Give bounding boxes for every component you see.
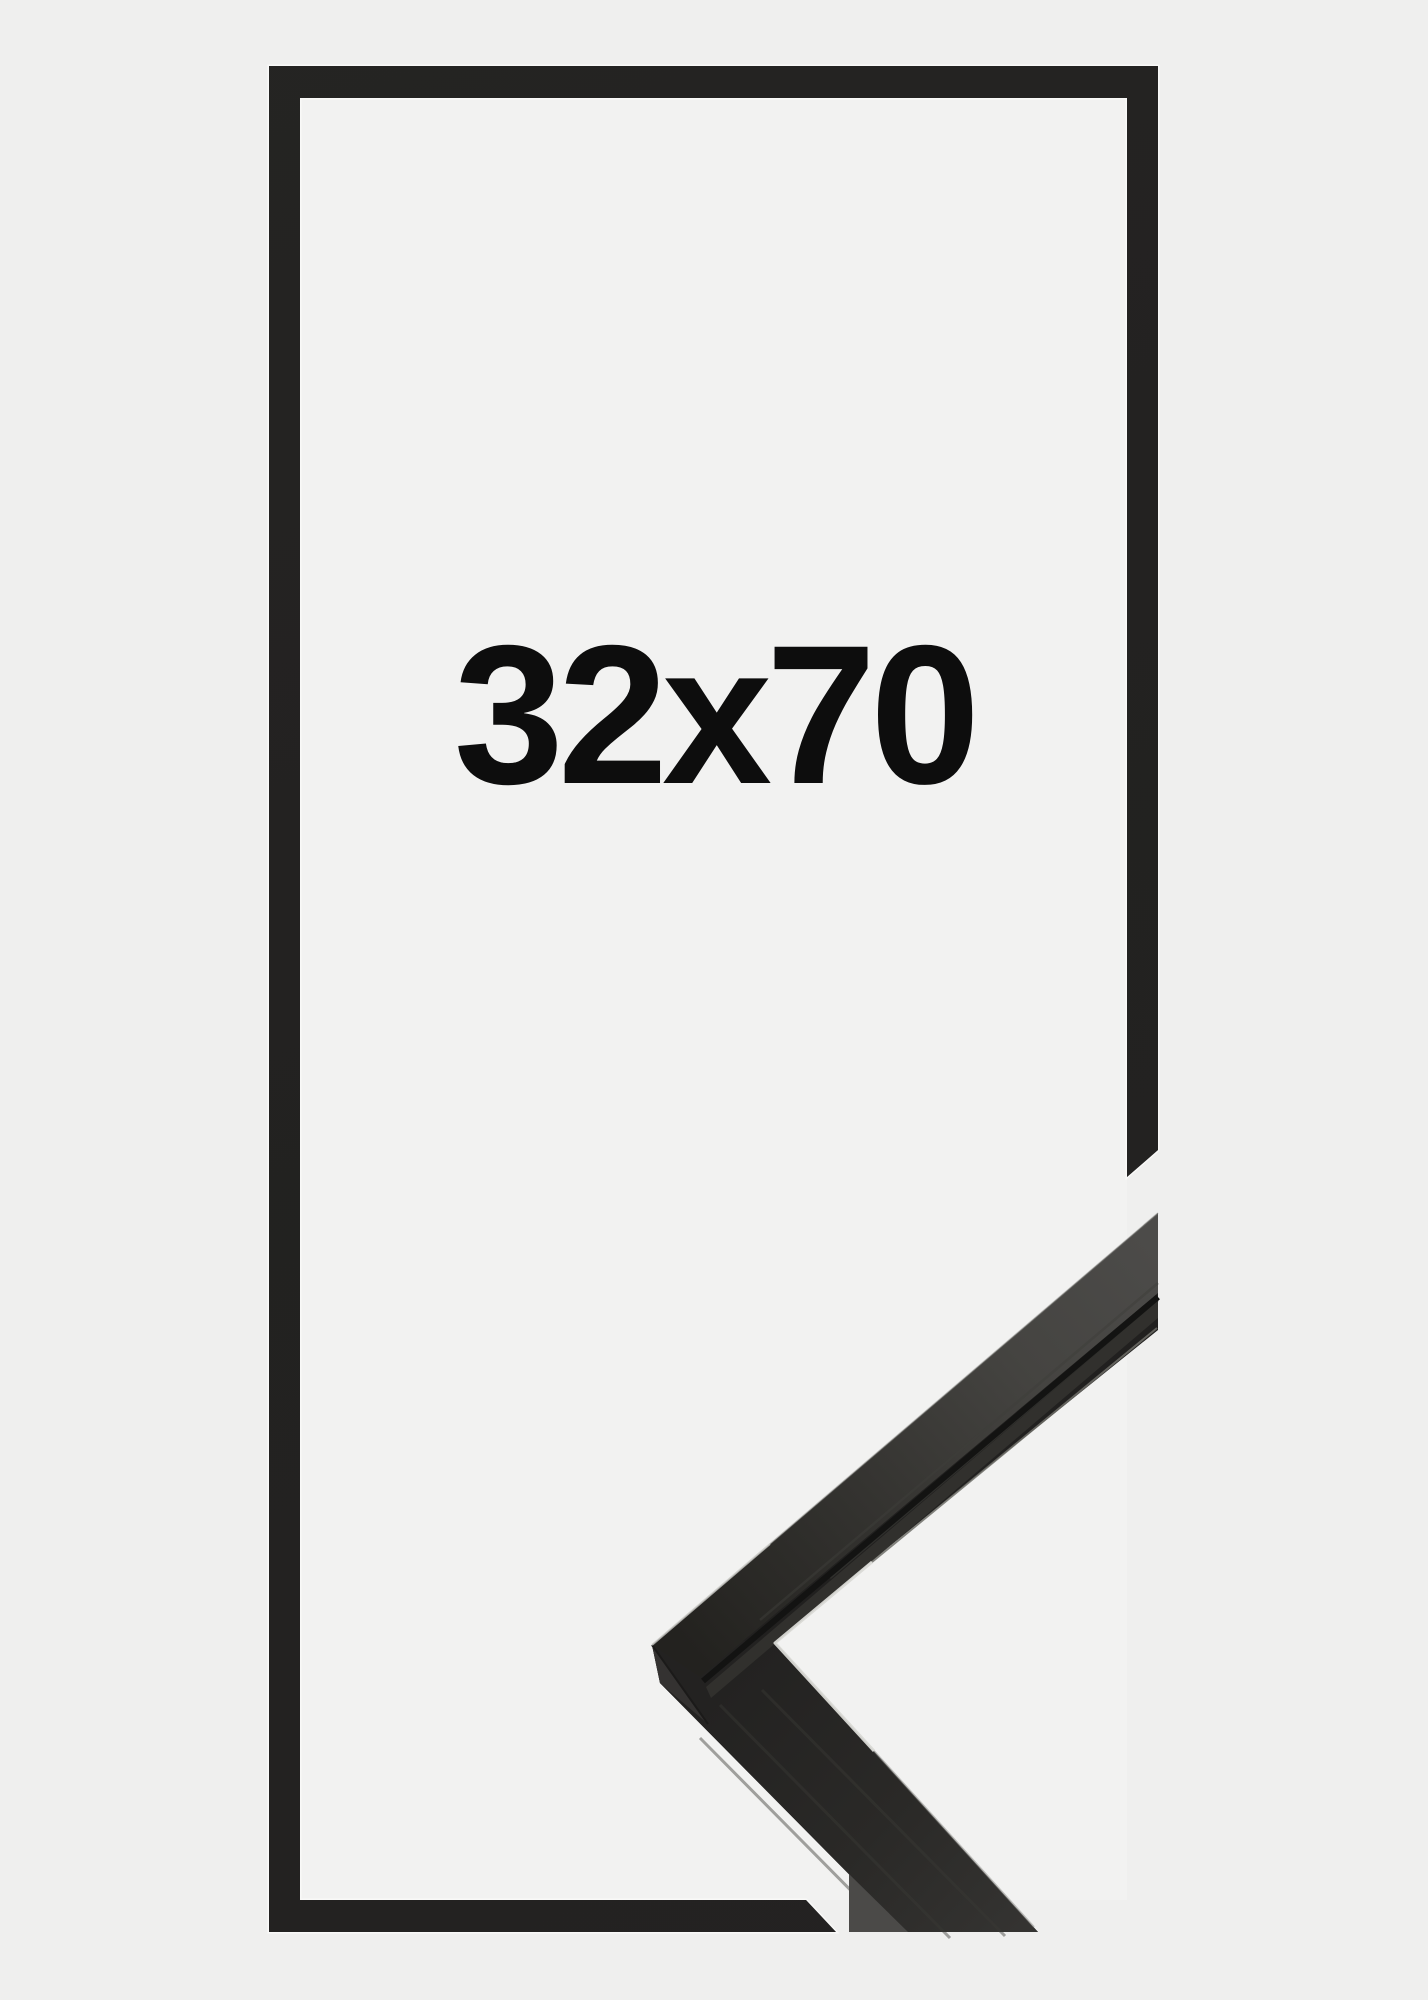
frame-product-graphic: 32x70 xyxy=(0,0,1428,2000)
product-image: 32x70 xyxy=(0,0,1428,2000)
size-label: 32x70 xyxy=(454,604,975,825)
